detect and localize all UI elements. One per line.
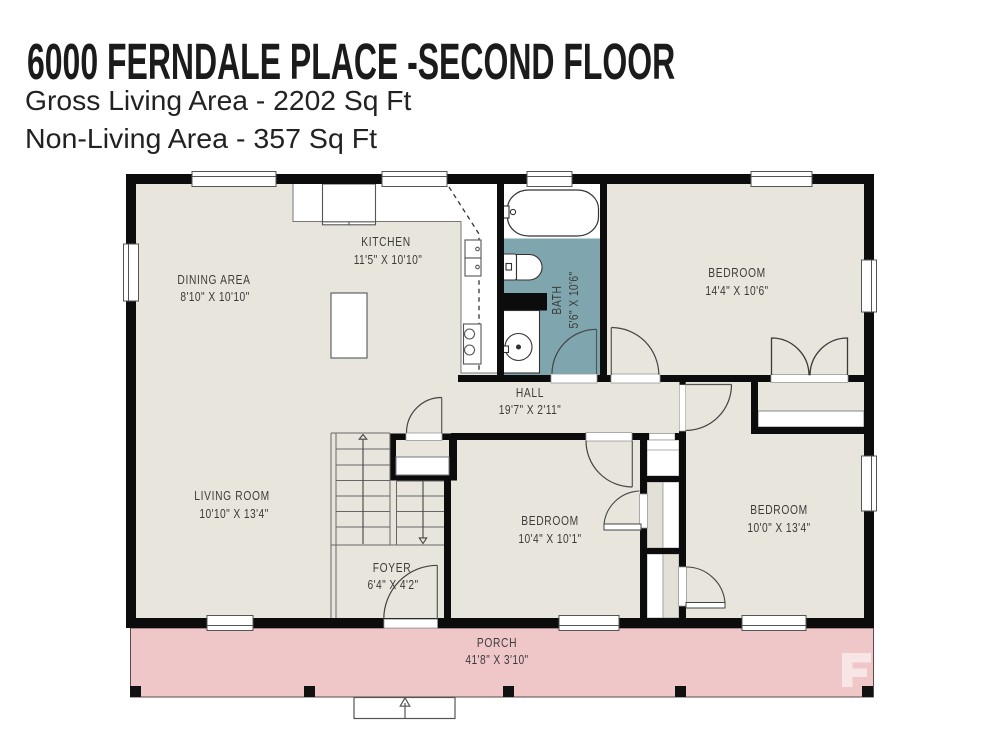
svg-text:41'8" X 3'10": 41'8" X 3'10" — [465, 654, 528, 667]
svg-text:DINING AREA: DINING AREA — [177, 274, 250, 287]
svg-text:BEDROOM: BEDROOM — [750, 504, 808, 517]
svg-text:8'10" X 10'10": 8'10" X 10'10" — [180, 291, 249, 304]
svg-text:Gross Living Area - 2202 Sq Ft: Gross Living Area - 2202 Sq Ft — [25, 85, 412, 116]
svg-text:10'0" X 13'4": 10'0" X 13'4" — [747, 522, 810, 535]
svg-text:BEDROOM: BEDROOM — [708, 267, 766, 280]
svg-text:HALL: HALL — [516, 387, 544, 400]
svg-text:6000 FERNDALE PLACE -SECOND FL: 6000 FERNDALE PLACE -SECOND FLOOR — [27, 33, 675, 91]
svg-text:PORCH: PORCH — [477, 637, 517, 650]
svg-text:LIVING ROOM: LIVING ROOM — [194, 490, 270, 503]
svg-text:10'4" X 10'1": 10'4" X 10'1" — [518, 533, 581, 546]
svg-text:KITCHEN: KITCHEN — [361, 236, 411, 249]
svg-text:Non-Living Area - 357 Sq Ft: Non-Living Area - 357 Sq Ft — [25, 123, 377, 153]
svg-text:11'5" X 10'10": 11'5" X 10'10" — [354, 254, 423, 267]
svg-text:FOYER: FOYER — [373, 562, 412, 575]
svg-text:19'7" X 2'11": 19'7" X 2'11" — [499, 404, 561, 417]
svg-text:BATH: BATH — [551, 285, 564, 314]
svg-text:14'4" X 10'6": 14'4" X 10'6" — [705, 285, 768, 298]
svg-text:5'6" X 10'6": 5'6" X 10'6" — [568, 271, 581, 328]
svg-text:10'10" X 13'4": 10'10" X 13'4" — [199, 508, 268, 521]
svg-text:BEDROOM: BEDROOM — [521, 515, 579, 528]
svg-text:6'4" X 4'2": 6'4" X 4'2" — [367, 579, 418, 592]
